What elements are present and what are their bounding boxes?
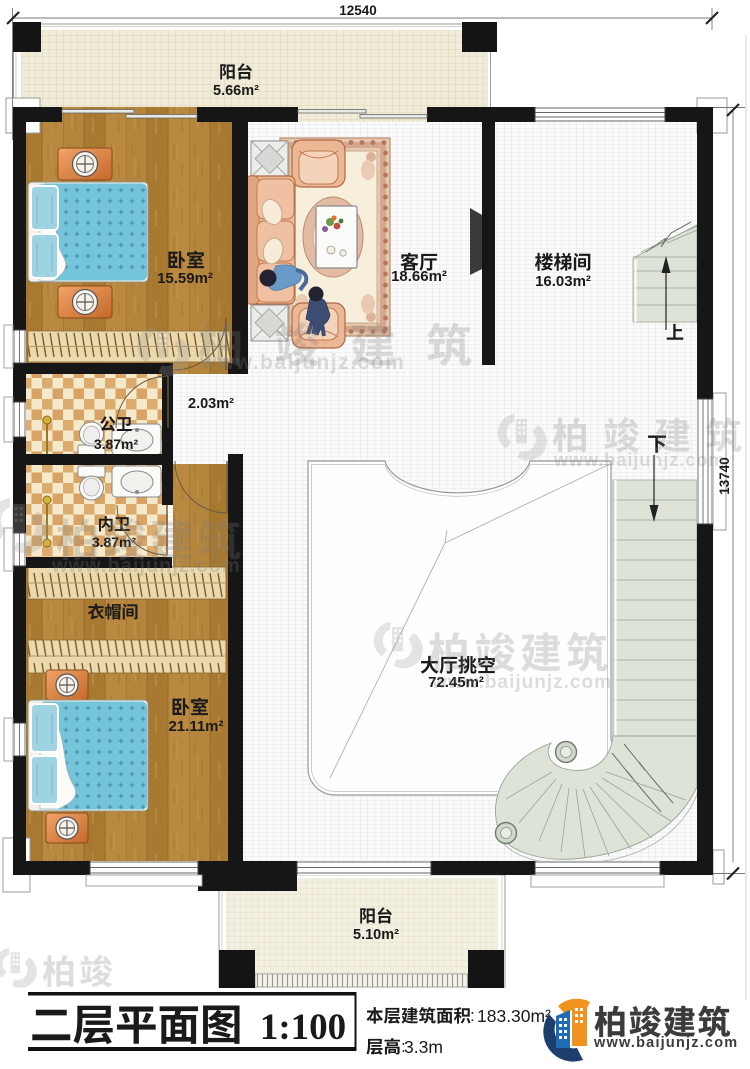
svg-text:www.baijunjz.com: www.baijunjz.com	[199, 351, 405, 374]
svg-text:3.3m: 3.3m	[404, 1037, 443, 1057]
svg-text:5.10m²: 5.10m²	[353, 927, 399, 943]
svg-text::: :	[401, 1037, 406, 1056]
svg-text:15.59m²: 15.59m²	[157, 270, 213, 287]
svg-text:18.66m²: 18.66m²	[391, 268, 447, 285]
svg-text:2.03m²: 2.03m²	[188, 396, 234, 412]
svg-text:www.baijunjz.com: www.baijunjz.com	[431, 672, 612, 693]
svg-text:www.baijunjz.com: www.baijunjz.com	[51, 555, 241, 577]
svg-text:183.30m²: 183.30m²	[477, 1006, 551, 1026]
svg-text::: :	[470, 1006, 475, 1025]
svg-text:www.baijunjz.com: www.baijunjz.com	[593, 1035, 738, 1051]
svg-text:www.baijunjz.com: www.baijunjz.com	[553, 450, 725, 470]
svg-text:12540: 12540	[339, 3, 377, 18]
svg-text:21.11m²: 21.11m²	[168, 718, 223, 735]
svg-text:3.87m²: 3.87m²	[94, 436, 139, 452]
svg-text:5.66m²: 5.66m²	[213, 83, 259, 99]
svg-text:16.03m²: 16.03m²	[535, 273, 591, 290]
svg-text:1:100: 1:100	[260, 1007, 346, 1048]
